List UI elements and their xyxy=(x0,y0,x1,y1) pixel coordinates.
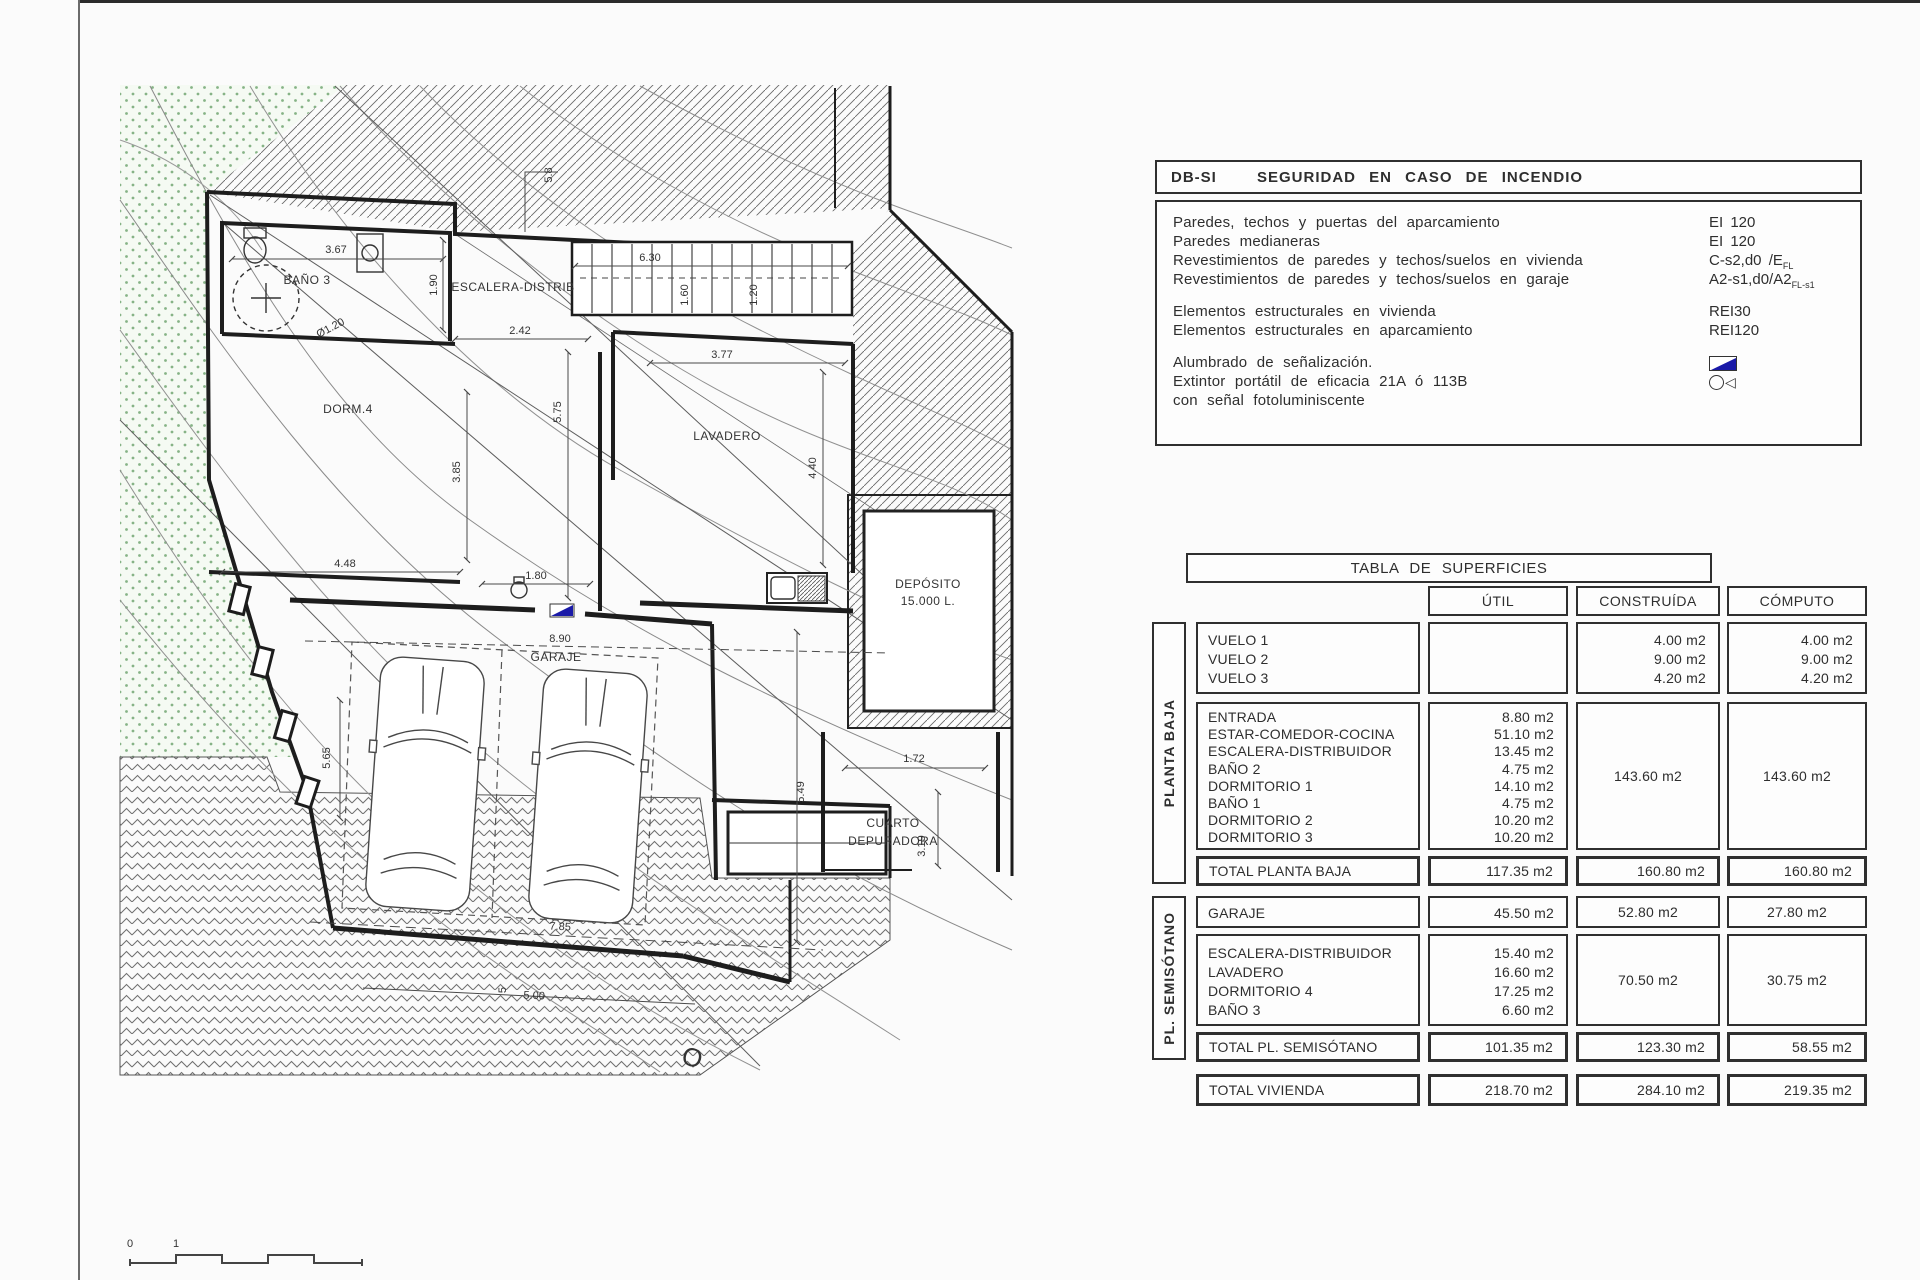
room-rows-labels: ESCALERA-DISTRIBUIDORLAVADERODORMITORIO … xyxy=(1196,934,1420,1026)
fire-row: con señal fotoluminiscente xyxy=(1173,392,1852,411)
dimension-label: 1.80 xyxy=(525,570,546,582)
column-header-construida: CONSTRUÍDA xyxy=(1576,586,1720,616)
surfaces-table-title: TABLA DE SUPERFICIES xyxy=(1186,553,1712,583)
util-value: 51.10 m2 xyxy=(1430,726,1566,743)
dimension-label: 5.00 xyxy=(523,989,545,1002)
room-label: LAVADERO xyxy=(693,429,761,443)
util-value: 4.75 m2 xyxy=(1430,761,1566,778)
dimension-label: 5.8 xyxy=(543,167,555,182)
util-value: 17.25 m2 xyxy=(1430,982,1566,1001)
room-rows-labels: GARAJE xyxy=(1196,896,1420,928)
fire-row-label: Extintor portátil de eficacia 21A ó 113B xyxy=(1173,373,1468,390)
util-value: 4.75 m2 xyxy=(1430,795,1566,812)
util-value: 10.20 m2 xyxy=(1430,829,1566,846)
fire-row-value: EI 120 xyxy=(1709,233,1755,250)
total-row-label: TOTAL PL. SEMISÓTANO xyxy=(1196,1032,1420,1062)
construida-value: 4.00 m2 xyxy=(1578,631,1718,650)
scale-label: 1 xyxy=(173,1238,179,1250)
dimension-label: 4.40 xyxy=(807,457,819,478)
room-row-label: BAÑO 1 xyxy=(1198,795,1418,812)
util-values: 8.80 m251.10 m213.45 m24.75 m214.10 m24.… xyxy=(1428,702,1568,850)
dimension-label: 5.65 xyxy=(321,747,333,768)
util-values xyxy=(1428,622,1568,694)
room-label: BAÑO 3 xyxy=(283,273,330,287)
room-row-label: VUELO 3 xyxy=(1198,669,1418,688)
room-row-label: ESCALERA-DISTRIBUIDOR xyxy=(1198,743,1418,760)
room-row-label: DORMITORIO 3 xyxy=(1198,829,1418,846)
fire-row-value-sub: FL xyxy=(1783,261,1794,271)
fire-row-label: Alumbrado de señalización. xyxy=(1173,354,1372,371)
dimension-label: 5.49 xyxy=(795,781,807,802)
dimension-label: 1.90 xyxy=(428,274,440,295)
fire-safety-table: DB-SI SEGURIDAD EN CASO DE INCENDIO Pare… xyxy=(1155,160,1862,447)
total-row-value: 218.70 m2 xyxy=(1428,1074,1568,1106)
room-rows-labels: ENTRADAESTAR-COMEDOR-COCINAESCALERA-DIST… xyxy=(1196,702,1420,850)
room-row-label: VUELO 1 xyxy=(1198,631,1418,650)
fire-row-label: con señal fotoluminiscente xyxy=(1173,392,1365,409)
fire-row: Elementos estructurales en viviendaREI30 xyxy=(1173,303,1852,322)
fire-row-value: A2-s1,d0/A2FL-s1 xyxy=(1709,271,1815,290)
floor-plan: BAÑO 3DORM.4ESCALERA-DISTRIBLAVADEROGARA… xyxy=(0,0,1080,1280)
util-value: 13.45 m2 xyxy=(1430,743,1566,760)
construida-values: 143.60 m2 xyxy=(1576,702,1720,850)
room-row-label: DORMITORIO 2 xyxy=(1198,812,1418,829)
fire-row: Revestimientos de paredes y techos/suelo… xyxy=(1173,271,1852,290)
util-value: 6.60 m2 xyxy=(1430,1001,1566,1020)
column-header-computo: CÓMPUTO xyxy=(1727,586,1867,616)
extinguisher-icon xyxy=(1709,375,1724,390)
extinguisher-icon: ◁ xyxy=(1709,373,1736,391)
construida-values: 4.00 m29.00 m24.20 m2 xyxy=(1576,622,1720,694)
room-rows-labels: VUELO 1VUELO 2VUELO 3 xyxy=(1196,622,1420,694)
room-label: ESCALERA-DISTRIB xyxy=(451,280,574,294)
computo-value: 4.00 m2 xyxy=(1729,631,1865,650)
room-row-label: GARAJE xyxy=(1198,903,1418,923)
construida-value: 9.00 m2 xyxy=(1578,650,1718,669)
signal-lamp-icon xyxy=(1709,356,1737,371)
total-row-value: 160.80 m2 xyxy=(1576,856,1720,886)
fire-row-label: Revestimientos de paredes y techos/suelo… xyxy=(1173,252,1583,269)
room-row-label: BAÑO 2 xyxy=(1198,761,1418,778)
dimension-label: 1.60 xyxy=(679,284,691,305)
fire-row: Revestimientos de paredes y techos/suelo… xyxy=(1173,252,1852,271)
pavement-herringbone xyxy=(120,757,890,1075)
fire-row: Extintor portátil de eficacia 21A ó 113B… xyxy=(1173,373,1852,392)
util-value: 15.40 m2 xyxy=(1430,944,1566,963)
total-row-label: TOTAL VIVIENDA xyxy=(1196,1074,1420,1106)
fire-row: Paredes medianerasEI 120 xyxy=(1173,233,1852,252)
total-row-value: 58.55 m2 xyxy=(1727,1032,1867,1062)
extinguisher-icon: ◁ xyxy=(1725,374,1736,390)
dimension-label: 7.85 xyxy=(549,920,571,933)
total-row-value: 101.35 m2 xyxy=(1428,1032,1568,1062)
room-row-label: BAÑO 3 xyxy=(1198,1001,1418,1020)
room-row-label: ENTRADA xyxy=(1198,709,1418,726)
room-row-label: VUELO 2 xyxy=(1198,650,1418,669)
total-row-value: 284.10 m2 xyxy=(1576,1074,1720,1106)
construida-values: 52.80 m2 xyxy=(1576,896,1720,928)
dimension-label: 3.19 xyxy=(916,835,928,856)
room-label: 15.000 L. xyxy=(901,594,956,608)
computo-values: 27.80 m2 xyxy=(1727,896,1867,928)
util-value: 10.20 m2 xyxy=(1430,812,1566,829)
fire-row: Elementos estructurales en aparcamientoR… xyxy=(1173,322,1852,341)
dimension-label: 8.90 xyxy=(549,633,570,645)
computo-values: 30.75 m2 xyxy=(1727,934,1867,1026)
dimension-label: 4.48 xyxy=(334,558,355,570)
computo-value: 4.20 m2 xyxy=(1729,669,1865,688)
dimension-label: 3.77 xyxy=(711,349,732,361)
laundry-sink xyxy=(767,573,827,603)
dimension-label: 2.42 xyxy=(509,325,530,337)
construida-values: 70.50 m2 xyxy=(1576,934,1720,1026)
computo-values: 143.60 m2 xyxy=(1727,702,1867,850)
util-value: 45.50 m2 xyxy=(1430,903,1566,923)
side-label-pl-semisotano: PL. SEMISÓTANO xyxy=(1152,896,1186,1060)
total-row-value: 219.35 m2 xyxy=(1727,1074,1867,1106)
fire-row-value: C-s2,d0 /EFL xyxy=(1709,252,1793,271)
room-row-label: LAVADERO xyxy=(1198,963,1418,982)
fire-row: Paredes, techos y puertas del aparcamien… xyxy=(1173,214,1852,233)
room-row-label: ESCALERA-DISTRIBUIDOR xyxy=(1198,944,1418,963)
column-header-util: ÚTIL xyxy=(1428,586,1568,616)
room-row-label: DORMITORIO 1 xyxy=(1198,778,1418,795)
drawing-sheet: { "fire_table": { "code": "DB-SI", "titl… xyxy=(0,0,1920,1280)
util-value: 16.60 m2 xyxy=(1430,963,1566,982)
util-values: 15.40 m216.60 m217.25 m26.60 m2 xyxy=(1428,934,1568,1026)
room-label: GARAJE xyxy=(530,650,581,664)
scale-label: 0 xyxy=(127,1238,133,1250)
fire-row-label: Elementos estructurales en vivienda xyxy=(1173,303,1436,320)
dimension-label: 6.30 xyxy=(639,252,660,264)
scale-bar xyxy=(130,1255,362,1266)
util-value: 8.80 m2 xyxy=(1430,709,1566,726)
room-row-label: ESTAR-COMEDOR-COCINA xyxy=(1198,726,1418,743)
signal-lamp-icon xyxy=(1709,354,1737,371)
dimension-label: 3.85 xyxy=(451,461,463,482)
fire-row-label: Paredes, techos y puertas del aparcamien… xyxy=(1173,214,1500,231)
signal-lamp-icon xyxy=(550,604,574,617)
dimension-label: 3.67 xyxy=(325,244,346,256)
fire-row-label: Elementos estructurales en aparcamiento xyxy=(1173,322,1473,339)
fire-table-body: Paredes, techos y puertas del aparcamien… xyxy=(1155,200,1862,446)
dimension-label: 5.75 xyxy=(552,401,564,422)
room-label: DEPÓSITO xyxy=(895,576,961,591)
fire-table-header: DB-SI SEGURIDAD EN CASO DE INCENDIO xyxy=(1155,160,1862,194)
fire-table-code: DB-SI xyxy=(1171,169,1217,186)
deposit-tank xyxy=(864,511,994,711)
util-values: 45.50 m2 xyxy=(1428,896,1568,928)
util-value: 14.10 m2 xyxy=(1430,778,1566,795)
total-row-value: 123.30 m2 xyxy=(1576,1032,1720,1062)
fire-row-label: Revestimientos de paredes y techos/suelo… xyxy=(1173,271,1569,288)
dimension-label: 1.20 xyxy=(748,284,760,305)
construida-value: 4.20 m2 xyxy=(1578,669,1718,688)
fire-row-label: Paredes medianeras xyxy=(1173,233,1320,250)
room-label: DORM.4 xyxy=(323,402,373,416)
fire-table-title: SEGURIDAD EN CASO DE INCENDIO xyxy=(1257,169,1583,186)
side-label-planta-baja: PLANTA BAJA xyxy=(1152,622,1186,884)
fire-row-value-sub: FL-s1 xyxy=(1792,280,1815,290)
total-row-label: TOTAL PLANTA BAJA xyxy=(1196,856,1420,886)
total-row-value: 160.80 m2 xyxy=(1727,856,1867,886)
computo-value: 9.00 m2 xyxy=(1729,650,1865,669)
dimension-label: 1.72 xyxy=(903,753,924,765)
total-row-value: 117.35 m2 xyxy=(1428,856,1568,886)
fire-row: Alumbrado de señalización. xyxy=(1173,354,1852,373)
fire-row-value: EI 120 xyxy=(1709,214,1755,231)
fire-row-value: REI30 xyxy=(1709,303,1751,320)
fire-row-value: REI120 xyxy=(1709,322,1759,339)
room-label: CUARTO xyxy=(866,816,919,830)
dimension-label: 5 xyxy=(497,987,509,993)
computo-values: 4.00 m29.00 m24.20 m2 xyxy=(1727,622,1867,694)
room-row-label: DORMITORIO 4 xyxy=(1198,982,1418,1001)
